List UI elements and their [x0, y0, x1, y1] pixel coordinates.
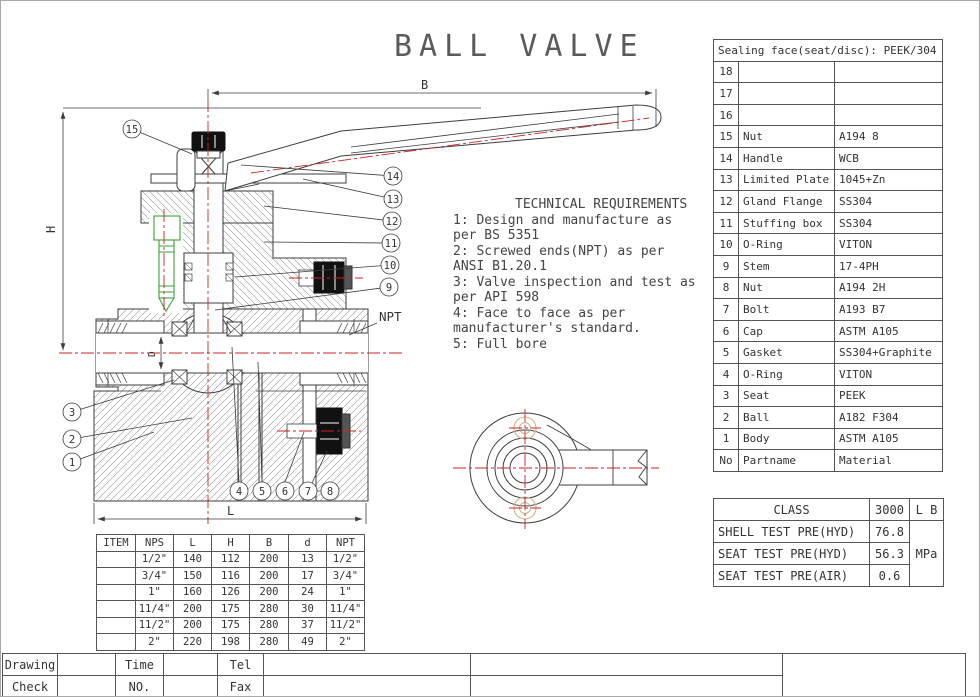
svg-text:7: 7 [305, 486, 311, 498]
balloon-12: 12 [383, 212, 401, 230]
table-row: 2BallA182 F304 [714, 407, 943, 429]
table-row: 7BoltA193 B7 [714, 299, 943, 321]
table-header-row: NoPartnameMaterial [714, 450, 943, 472]
sealing-face-note: Sealing face(seat/disc): PEEK/304 [714, 40, 943, 62]
table-row: 17 [714, 83, 943, 105]
table-row: Sealing face(seat/disc): PEEK/304 [714, 40, 943, 62]
balloon-13: 13 [384, 190, 402, 208]
table-row: CLASS3000L B [714, 499, 944, 521]
drawing-value [58, 654, 116, 676]
check-value [58, 676, 116, 697]
balloon-4: 4 [230, 482, 248, 500]
svg-text:9: 9 [386, 282, 392, 294]
pressure-unit: MPa [910, 521, 944, 587]
svg-text:2: 2 [69, 434, 75, 446]
table-row: SEAT TEST PRE(HYD)56.3 [714, 543, 944, 565]
table-row: 11Stuffing boxSS304 [714, 212, 943, 234]
time-label: Time [116, 654, 164, 676]
svg-text:15: 15 [126, 124, 139, 136]
balloon-10: 10 [381, 256, 399, 274]
logo-field [783, 654, 966, 697]
table-row: 14HandleWCB [714, 147, 943, 169]
table-row: 3/4"150116200173/4" [97, 568, 365, 585]
table-row: 11/2"2001752803711/2" [97, 617, 365, 634]
svg-text:3: 3 [69, 407, 75, 419]
tech-req-line: 2: Screwed ends(NPT) as per [453, 244, 705, 260]
table-row: 18 [714, 61, 943, 83]
svg-text:11: 11 [385, 238, 398, 250]
title-block: Drawing Time Tel Check NO. Fax [2, 653, 966, 697]
table-row: 2"220198280492" [97, 634, 365, 651]
table-row: 13Limited Plate1045+Zn [714, 169, 943, 191]
company-field [471, 654, 783, 676]
page-title: BALL VALVE [394, 29, 645, 64]
balloon-1: 1 [63, 453, 81, 471]
table-row: 1BodyASTM A105 [714, 428, 943, 450]
table-row: 1/2"140112200131/2" [97, 551, 365, 568]
balloon-11: 11 [382, 234, 400, 252]
balloon-8: 8 [321, 482, 339, 500]
balloon-5: 5 [253, 482, 271, 500]
table-row: 11/4"2001752803011/4" [97, 601, 365, 618]
svg-text:1: 1 [69, 457, 75, 469]
table-row: 10O-RingVITON [714, 234, 943, 256]
svg-text:10: 10 [384, 260, 397, 272]
table-row: 8NutA194 2H [714, 277, 943, 299]
tel-value [264, 654, 471, 676]
table-row: SHELL TEST PRE(HYD)76.8MPa [714, 521, 944, 543]
fax-value [264, 676, 471, 697]
drawing-label: Drawing [3, 654, 58, 676]
table-row: 1"160126200241" [97, 584, 365, 601]
no-label: NO. [116, 676, 164, 697]
npt-label: NPT [379, 309, 402, 324]
dim-b-label: B [421, 78, 428, 92]
no-value [164, 676, 218, 697]
class-label: CLASS [714, 499, 870, 521]
parts-table: Sealing face(seat/disc): PEEK/304 18 17 … [713, 39, 943, 472]
table-row: 15NutA194 8 [714, 126, 943, 148]
table-row: Drawing Time Tel [3, 654, 966, 676]
tech-req-line: 5: Full bore [453, 337, 705, 353]
table-row: 16 [714, 104, 943, 126]
company-field2 [471, 676, 783, 697]
tech-req-line: manufacturer's standard. [453, 321, 705, 337]
class-value: 3000 [870, 499, 910, 521]
table-row: 3SeatPEEK [714, 385, 943, 407]
table-row: 4O-RingVITON [714, 363, 943, 385]
svg-text:13: 13 [387, 194, 400, 206]
svg-text:8: 8 [327, 486, 333, 498]
table-row: 12Gland FlangeSS304 [714, 191, 943, 213]
table-row: 5GasketSS304+Graphite [714, 342, 943, 364]
technical-requirements: TECHNICAL REQUIREMENTS 1: Design and man… [453, 197, 705, 352]
dim-d-label: D [147, 351, 158, 357]
fax-label: Fax [218, 676, 264, 697]
balloon-7: 7 [299, 482, 317, 500]
table-row: 6CapASTM A105 [714, 320, 943, 342]
check-label: Check [3, 676, 58, 697]
balloon-2: 2 [63, 430, 81, 448]
class-table: CLASS3000L B SHELL TEST PRE(HYD)76.8MPa … [713, 498, 944, 587]
balloon-3: 3 [63, 403, 81, 421]
svg-text:6: 6 [282, 486, 288, 498]
tech-req-line: per BS 5351 [453, 228, 705, 244]
svg-text:12: 12 [386, 216, 399, 228]
dimensions-table: ITEMNPSLHBdNPT 1/2"140112200131/2" 3/4"1… [96, 534, 365, 651]
tech-req-heading: TECHNICAL REQUIREMENTS [453, 197, 705, 213]
dim-h-label: H [44, 226, 58, 233]
tech-req-line: 3: Valve inspection and test as [453, 275, 705, 291]
tech-req-line: 1: Design and manufacture as [453, 213, 705, 229]
drawing-sheet: B H L D NPT 15 14 13 12 11 10 9 3 2 1 4 … [0, 0, 980, 697]
time-value [164, 654, 218, 676]
tech-req-line: ANSI B1.20.1 [453, 259, 705, 275]
svg-text:14: 14 [387, 171, 400, 183]
svg-text:4: 4 [236, 486, 242, 498]
balloon-6: 6 [276, 482, 294, 500]
balloon-15: 15 [123, 120, 141, 138]
dim-l-label: L [227, 504, 234, 518]
class-unit: L B [910, 499, 944, 521]
balloon-14: 14 [384, 167, 402, 185]
tech-req-line: per API 598 [453, 290, 705, 306]
svg-text:5: 5 [259, 486, 265, 498]
tech-req-line: 4: Face to face as per [453, 306, 705, 322]
balloon-9: 9 [380, 278, 398, 296]
tel-label: Tel [218, 654, 264, 676]
table-header-row: ITEMNPSLHBdNPT [97, 535, 365, 552]
table-row: 9Stem17-4PH [714, 255, 943, 277]
table-row: SEAT TEST PRE(AIR)0.6 [714, 565, 944, 587]
